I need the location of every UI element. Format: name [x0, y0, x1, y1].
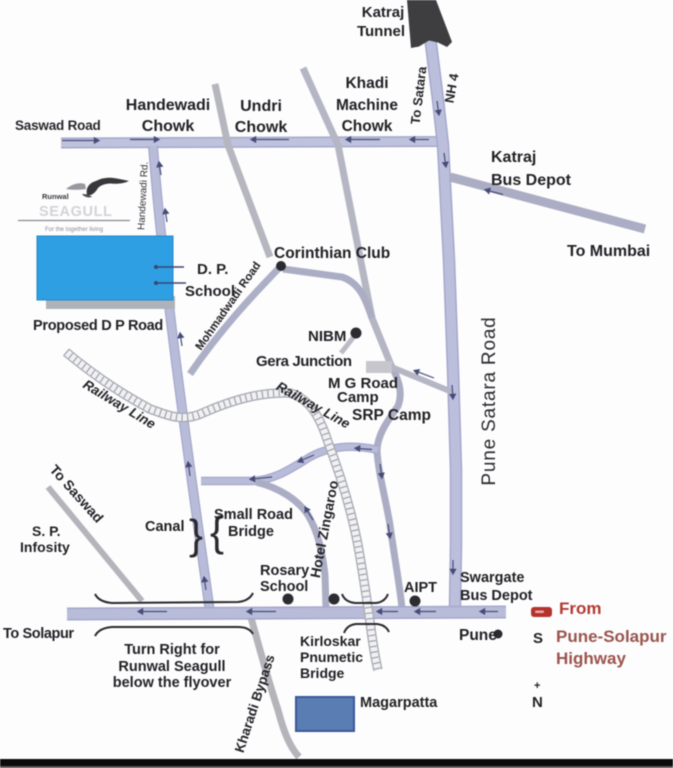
svg-text:Small Road: Small Road	[214, 507, 293, 523]
svg-text:Runwal Seagull: Runwal Seagull	[118, 659, 225, 675]
svg-text:Kirloskar: Kirloskar	[300, 633, 361, 649]
svg-text:NIBM: NIBM	[308, 328, 346, 345]
svg-text:Camp: Camp	[337, 389, 379, 406]
svg-text:SRP Camp: SRP Camp	[352, 407, 431, 424]
svg-text:Machine: Machine	[336, 97, 398, 114]
svg-text:Undri: Undri	[240, 98, 282, 115]
svg-text:From: From	[559, 599, 602, 618]
svg-text:D. P.: D. P.	[197, 261, 228, 278]
svg-text:Chowk: Chowk	[235, 119, 288, 136]
svg-text:Rosary: Rosary	[260, 563, 309, 579]
svg-text:Bridge: Bridge	[228, 524, 274, 540]
svg-text:For the together living: For the together living	[45, 227, 103, 233]
svg-text:Pune Satara Road: Pune Satara Road	[479, 316, 500, 485]
svg-text:Chowk: Chowk	[342, 118, 393, 135]
svg-text:Saswad Road: Saswad Road	[15, 118, 101, 133]
svg-text:Pnumetic: Pnumetic	[300, 649, 363, 665]
svg-text:Infosity: Infosity	[20, 539, 70, 555]
svg-text:Chowk: Chowk	[142, 118, 195, 135]
svg-text:Highway: Highway	[556, 649, 626, 668]
svg-text:Turn Right for: Turn Right for	[124, 642, 220, 658]
svg-text:S. P.: S. P.	[32, 523, 61, 539]
svg-text:S: S	[533, 630, 543, 647]
svg-text:Katraj: Katraj	[362, 4, 405, 21]
svg-text:Magarpatta: Magarpatta	[360, 695, 438, 711]
svg-text:}: }	[189, 511, 203, 558]
svg-text:Katraj: Katraj	[491, 149, 536, 166]
svg-text:Swargate: Swargate	[460, 570, 524, 586]
svg-text:Khadi: Khadi	[345, 75, 388, 92]
svg-text:Proposed D P Road: Proposed D P Road	[33, 318, 163, 334]
svg-text:Corinthian Club: Corinthian Club	[274, 245, 390, 262]
svg-text:+: +	[534, 680, 540, 692]
svg-text:School: School	[260, 579, 308, 595]
svg-text:Handewadi: Handewadi	[126, 97, 210, 114]
svg-text:AIPT: AIPT	[404, 580, 437, 596]
svg-text:Runwal: Runwal	[42, 192, 69, 201]
svg-text:Pune-Solapur: Pune-Solapur	[556, 627, 667, 646]
svg-text:Bridge: Bridge	[300, 665, 345, 681]
svg-text:N: N	[532, 694, 543, 711]
svg-text:Tunnel: Tunnel	[357, 23, 405, 40]
svg-text:To Mumbai: To Mumbai	[567, 243, 650, 260]
svg-text:Bus Depot: Bus Depot	[460, 588, 533, 604]
svg-text:Bus Depot: Bus Depot	[491, 172, 572, 189]
svg-text:To Solapur: To Solapur	[3, 626, 74, 642]
svg-text:below the flyover: below the flyover	[113, 675, 232, 691]
svg-text:Canal: Canal	[145, 519, 185, 535]
svg-text:Pune: Pune	[459, 627, 497, 644]
svg-text:SEAGULL: SEAGULL	[39, 204, 112, 220]
svg-text:Gera Junction: Gera Junction	[256, 353, 352, 370]
